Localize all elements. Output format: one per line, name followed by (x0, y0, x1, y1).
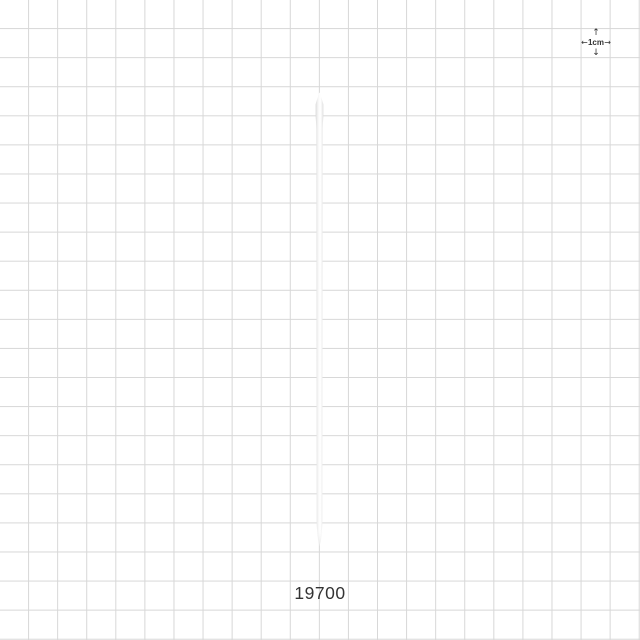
scale-indicator: ↑ ← 1cm → ↓ (581, 28, 611, 58)
arrow-down-icon: ↓ (592, 49, 600, 57)
product-photo-canvas: ↑ ← 1cm → ↓ 19700 (0, 0, 640, 640)
arrow-left-icon: ← (581, 39, 588, 47)
arrow-up-icon: ↑ (592, 29, 600, 37)
part-number-label: 19700 (0, 583, 640, 604)
scale-row: ← 1cm → (581, 39, 611, 47)
scale-label: 1cm (588, 39, 604, 47)
measurement-grid-background (0, 0, 640, 640)
arrow-right-icon: → (604, 39, 611, 47)
